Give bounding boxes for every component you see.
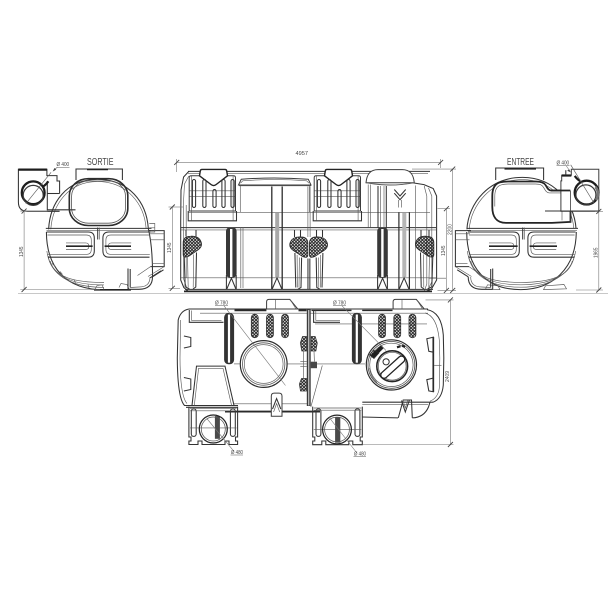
svg-text:1345: 1345	[441, 245, 447, 256]
svg-text:1345: 1345	[167, 242, 173, 253]
svg-text:1965: 1965	[594, 247, 600, 258]
svg-text:4957: 4957	[296, 151, 309, 157]
svg-text:2200: 2200	[448, 224, 454, 235]
svg-text:ENTREE: ENTREE	[507, 157, 534, 168]
svg-text:2409: 2409	[445, 371, 451, 382]
svg-text:SORTIE: SORTIE	[87, 157, 114, 168]
svg-text:1345: 1345	[19, 246, 25, 257]
